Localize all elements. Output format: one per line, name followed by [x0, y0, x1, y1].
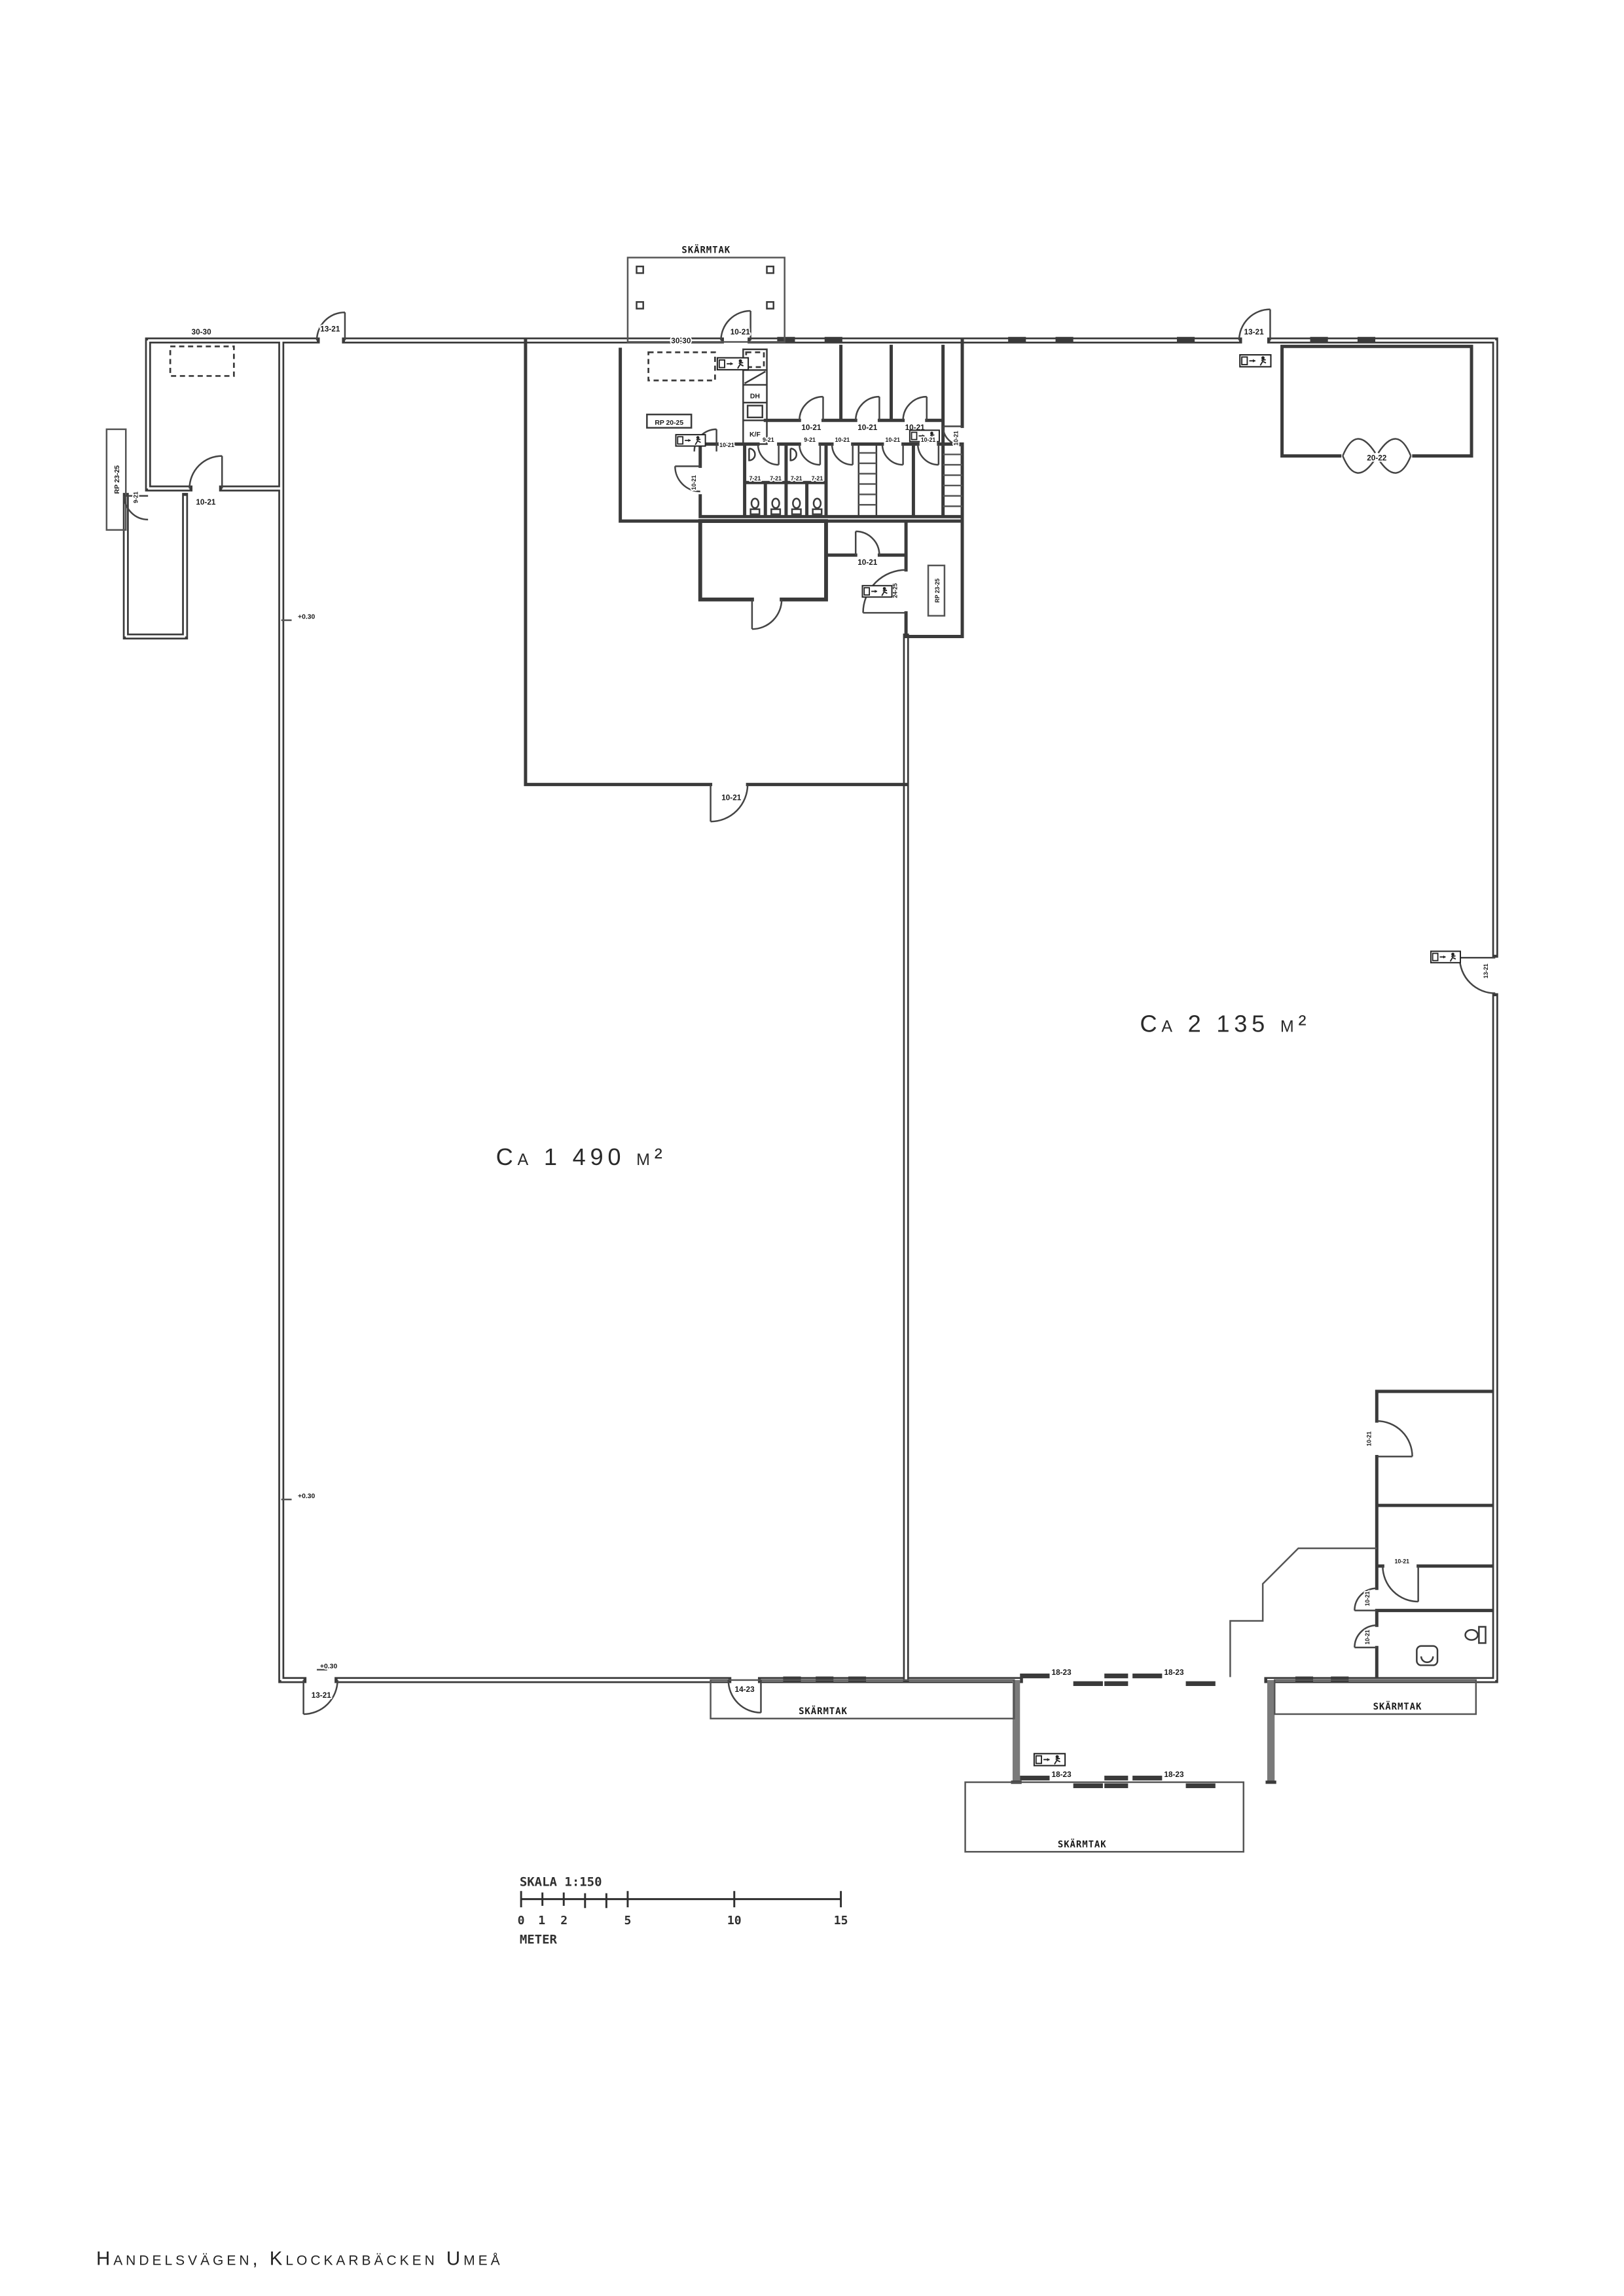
level-upper: +0.30: [298, 613, 316, 620]
exit-sign-vestibule: [1034, 1753, 1065, 1765]
area-label-left-hall: Ca 1 490 m²: [496, 1143, 667, 1170]
door-strip3-label: 10-21: [1364, 1591, 1371, 1606]
door-storage-label: 20-22: [1367, 454, 1387, 462]
scale-tick-1: 1: [538, 1914, 545, 1928]
door-strip4-label: 10-21: [1364, 1630, 1371, 1645]
door-protrusion-h-label: 10-21: [196, 498, 216, 507]
door-slide-top2-label: 18-23: [1164, 1668, 1184, 1677]
door-slide-bottom2-label: 18-23: [1164, 1770, 1184, 1779]
exit-sign-top-right: [1240, 355, 1271, 367]
scale-tick-5: 5: [624, 1914, 631, 1928]
door-protrusion-v-label: 9-21: [132, 492, 139, 503]
pentry-kf-label: K/F: [749, 431, 761, 439]
dock-office-label: 30-30: [671, 337, 691, 346]
door-lobby-label: 10-21: [719, 442, 734, 448]
door-bottom-corner-label: 13-21: [312, 1691, 332, 1700]
door-stall1-label: 7-21: [749, 475, 761, 482]
ramp-left-label: RP 23-25: [114, 465, 121, 494]
door-wc5-label: 10-21: [921, 437, 936, 443]
canopy-bottom-right-label: SKÄRMTAK: [1373, 1701, 1422, 1712]
door-stall3-label: 7-21: [791, 475, 803, 482]
door-slide-bottom1-label: 18-23: [1052, 1770, 1072, 1779]
door-wc4-label: 10-21: [885, 437, 900, 443]
door-bottom-canopy-label: 14-23: [735, 1685, 755, 1694]
door-hall-join-label: 10-21: [721, 793, 742, 802]
door-wc1-label: 9-21: [763, 437, 774, 443]
canopy-bottom-left-label: SKÄRMTAK: [799, 1706, 848, 1717]
paper: [0, 0, 1624, 2296]
floor-plan-sheet: SKÄRMTAK 30-30 RP 23-25 10-21 9-21 13-21…: [0, 0, 1624, 2296]
door-wc2-label: 9-21: [804, 437, 816, 443]
level-lower: +0.30: [298, 1493, 316, 1500]
exit-sign-entrance: [717, 358, 748, 370]
canopy-vestibule-label: SKÄRMTAK: [1058, 1839, 1107, 1850]
door-corridor-east-label: 10-21: [952, 431, 959, 446]
pentry-dh-label: DH: [750, 393, 760, 400]
door-stall4-label: 7-21: [812, 475, 823, 482]
door-right-wall-label: 13-21: [1483, 963, 1489, 978]
scale-title: SKALA 1:150: [520, 1874, 602, 1889]
door-office-b-label: 10-21: [857, 423, 878, 432]
door-corridor-mid-label: 10-21: [857, 558, 878, 567]
scale-tick-2: 2: [560, 1914, 568, 1928]
door-top-left-label: 13-21: [320, 325, 340, 334]
door-wc-west-label: 10-21: [691, 475, 697, 490]
door-strip2-label: 10-21: [1394, 1558, 1409, 1564]
exit-sign-2425: [862, 586, 892, 597]
scale-tick-10: 10: [727, 1914, 742, 1928]
door-strip1-label: 10-21: [1365, 1431, 1372, 1446]
scale-tick-0: 0: [518, 1914, 525, 1928]
door-slide-top1-label: 18-23: [1052, 1668, 1072, 1677]
exit-sign-lobby: [676, 435, 705, 446]
ramp-office-label: RP 20-25: [655, 420, 683, 427]
exit-sign-right-wall: [1431, 951, 1460, 962]
canopy-top-label: SKÄRMTAK: [681, 245, 731, 256]
scale-unit: METER: [520, 1933, 558, 1947]
scale-tick-15: 15: [834, 1914, 848, 1928]
door-office-a-label: 10-21: [801, 423, 821, 432]
ramp-corridor-label: RP 23-25: [934, 579, 941, 603]
dock-left-label: 30-30: [192, 328, 212, 336]
level-corner: +0.30: [320, 1663, 338, 1670]
door-top-right-label: 13-21: [1244, 328, 1265, 336]
door-entrance-label: 10-21: [731, 328, 751, 336]
door-wc3-label: 10-21: [835, 437, 850, 443]
door-stall2-label: 7-21: [770, 475, 782, 482]
footer-address: Handelsvägen, Klockarbäcken Umeå: [96, 2248, 503, 2269]
door-2425-label: 24-25: [892, 583, 899, 598]
area-label-right-hall: Ca 2 135 m²: [1140, 1010, 1310, 1037]
